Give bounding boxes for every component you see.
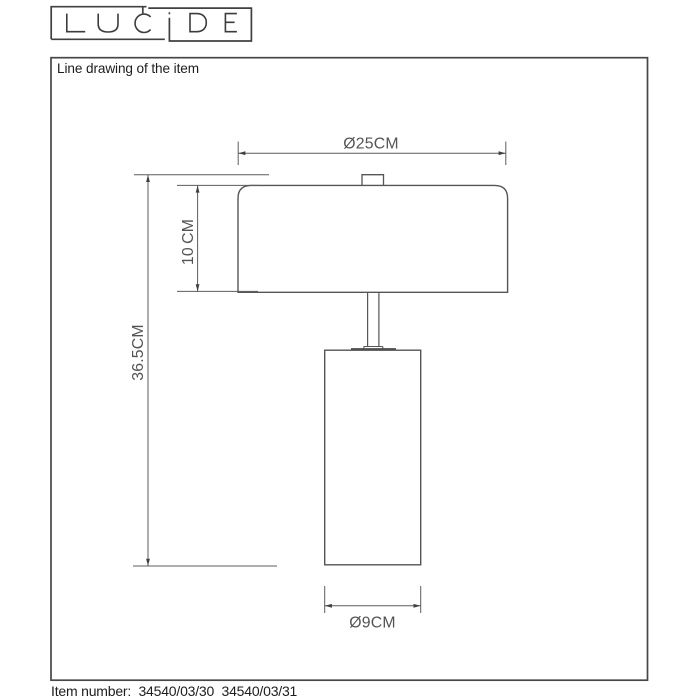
svg-text:Ø9CM: Ø9CM xyxy=(349,615,395,632)
svg-text:Item number: 34540/03/30 345: Item number: 34540/03/30 34540/03/31 xyxy=(51,683,298,699)
svg-text:Ø25CM: Ø25CM xyxy=(343,136,398,153)
svg-text:Line drawing of the item: Line drawing of the item xyxy=(57,61,199,76)
svg-text:10 CM: 10 CM xyxy=(180,219,197,265)
svg-text:36.5CM: 36.5CM xyxy=(130,324,147,381)
